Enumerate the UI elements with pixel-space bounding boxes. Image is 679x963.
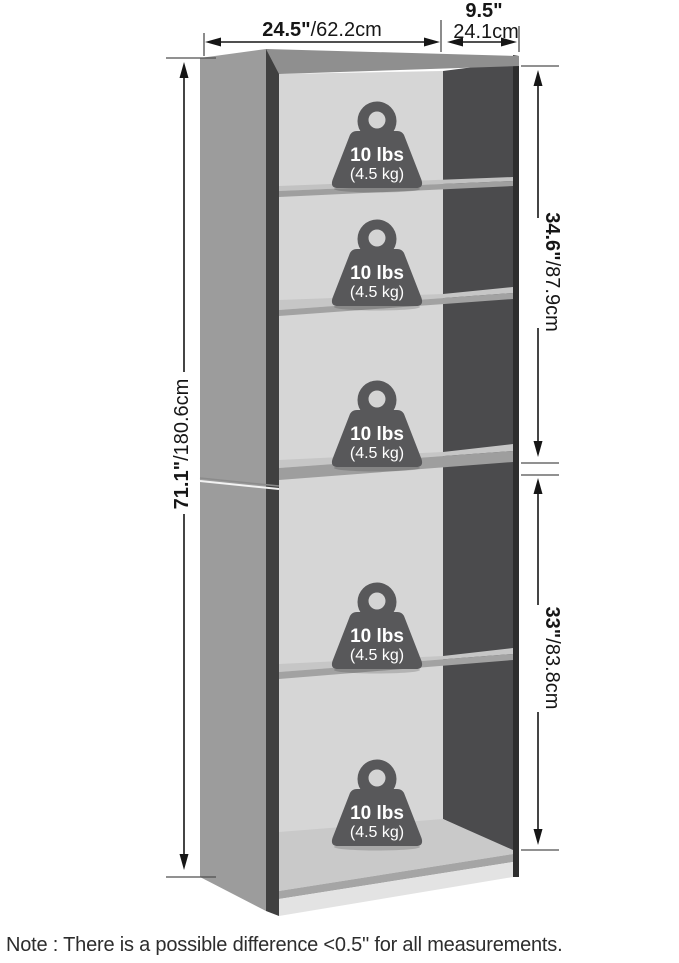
height-dimension-label: 71.1"/180.6cm [171, 379, 193, 510]
weight-lbs-label: 10 lbs [350, 424, 404, 445]
left-front-edge [266, 49, 279, 916]
weight-kg-label: (4.5 kg) [350, 445, 404, 462]
lower-section-metric: /83.8cm [541, 638, 563, 709]
lower-section-imperial: 33" [541, 607, 563, 639]
weight-kg-label: (4.5 kg) [350, 284, 404, 301]
width-dimension-label: 24.5"/62.2cm [262, 19, 382, 41]
right-outer-edge [513, 55, 519, 877]
upper-section-metric: /87.9cm [541, 261, 563, 332]
upper-section-label: 34.6"/87.9cm [541, 212, 563, 332]
weight-lbs-label: 10 lbs [350, 626, 404, 647]
weight-lbs-label: 10 lbs [350, 803, 404, 824]
height-metric: /180.6cm [171, 379, 193, 461]
depth-imperial-label: 9.5" [465, 0, 502, 22]
weight-lbs-label: 10 lbs [350, 145, 404, 166]
weight-kg-label: (4.5 kg) [350, 824, 404, 841]
bookcase-dimension-diagram: 10 lbs (4.5 kg) 10 lbs (4.5 kg) 10 lbs (… [0, 0, 679, 963]
width-imperial: 24.5" [262, 19, 310, 41]
left-side-panel [200, 49, 266, 911]
height-imperial: 71.1" [171, 461, 193, 509]
measurement-note: Note : There is a possible difference <0… [6, 934, 676, 957]
depth-metric-label: 24.1cm [453, 21, 519, 43]
upper-section-imperial: 34.6" [541, 212, 563, 260]
weight-kg-label: (4.5 kg) [350, 166, 404, 183]
width-metric: /62.2cm [311, 19, 382, 41]
lower-section-label: 33"/83.8cm [541, 607, 563, 710]
weight-lbs-label: 10 lbs [350, 263, 404, 284]
weight-kg-label: (4.5 kg) [350, 647, 404, 664]
diagram-svg: 10 lbs (4.5 kg) 10 lbs (4.5 kg) 10 lbs (… [0, 0, 679, 963]
